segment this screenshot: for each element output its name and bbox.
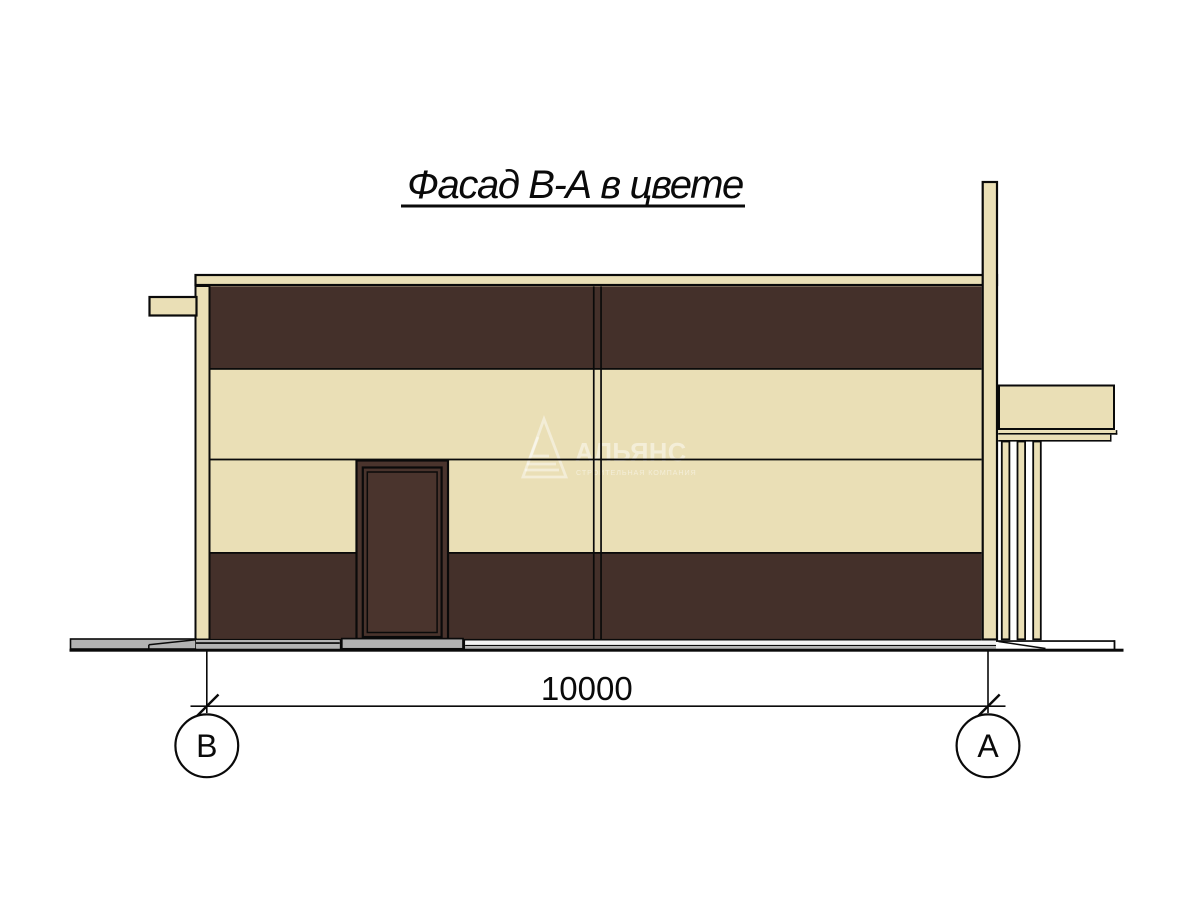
svg-text:АЛЬЯНС: АЛЬЯНС	[575, 439, 687, 467]
svg-text:Фасад В-А в цвете: Фасад В-А в цвете	[407, 163, 743, 207]
svg-text:А: А	[977, 728, 999, 764]
svg-text:10000: 10000	[541, 670, 633, 707]
svg-text:В: В	[196, 728, 217, 764]
